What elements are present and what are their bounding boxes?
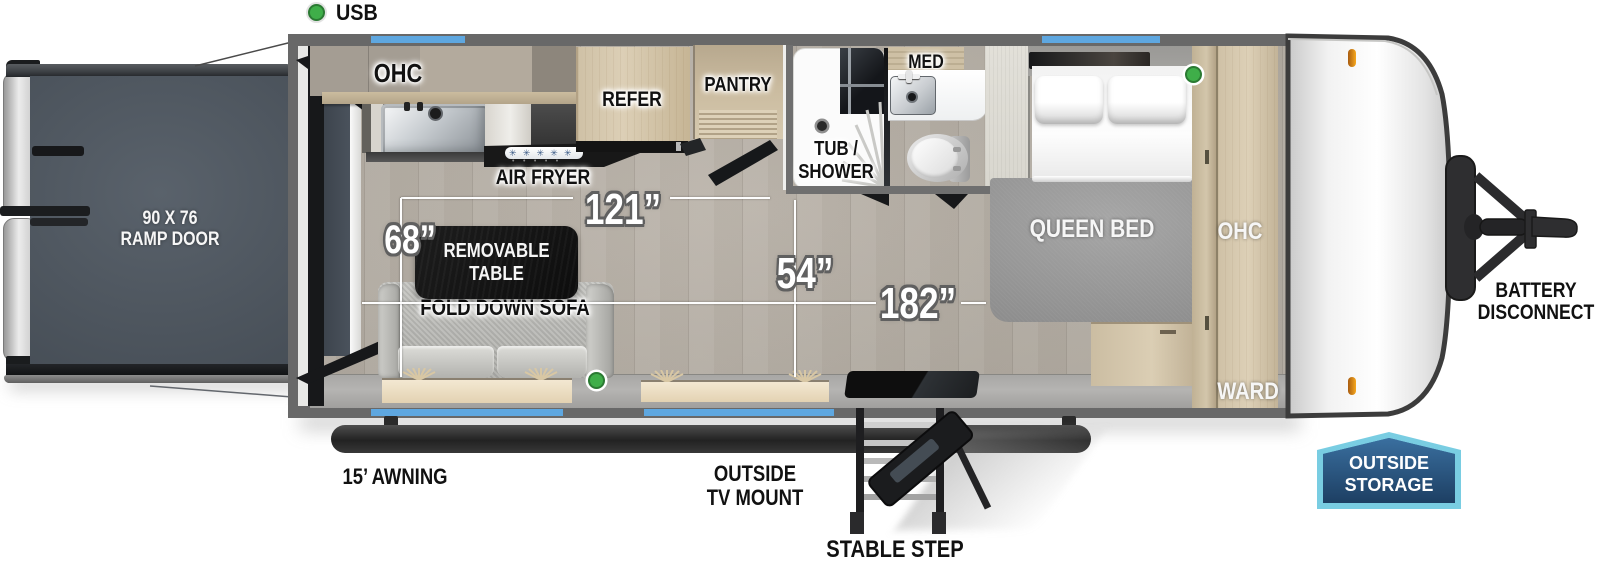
- svg-text:STORAGE: STORAGE: [1345, 475, 1434, 495]
- svg-text:OUTSIDE: OUTSIDE: [1349, 453, 1429, 473]
